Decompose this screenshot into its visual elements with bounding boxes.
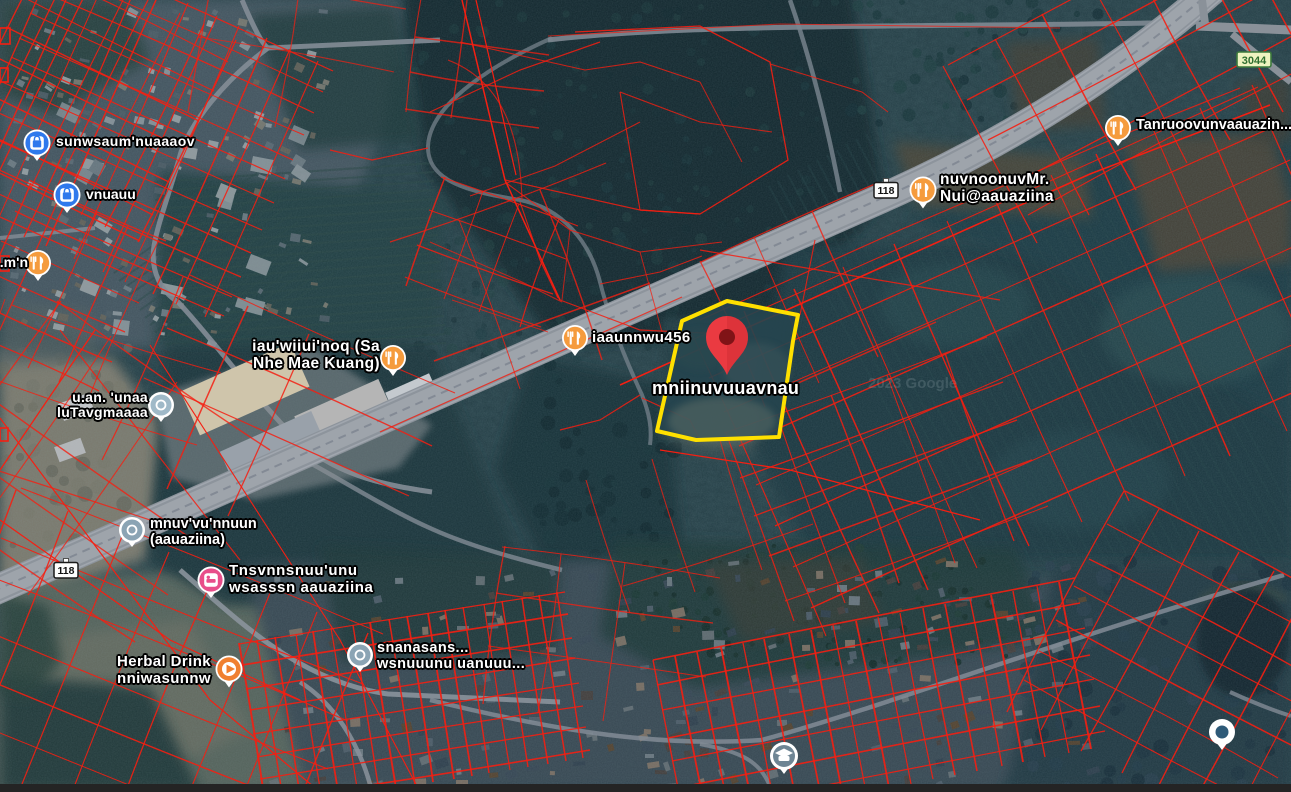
svg-text:118: 118 bbox=[58, 565, 75, 577]
svg-text:2023 Google: 2023 Google bbox=[868, 375, 957, 392]
svg-text:118: 118 bbox=[878, 185, 895, 197]
svg-text:3044: 3044 bbox=[1242, 55, 1267, 67]
